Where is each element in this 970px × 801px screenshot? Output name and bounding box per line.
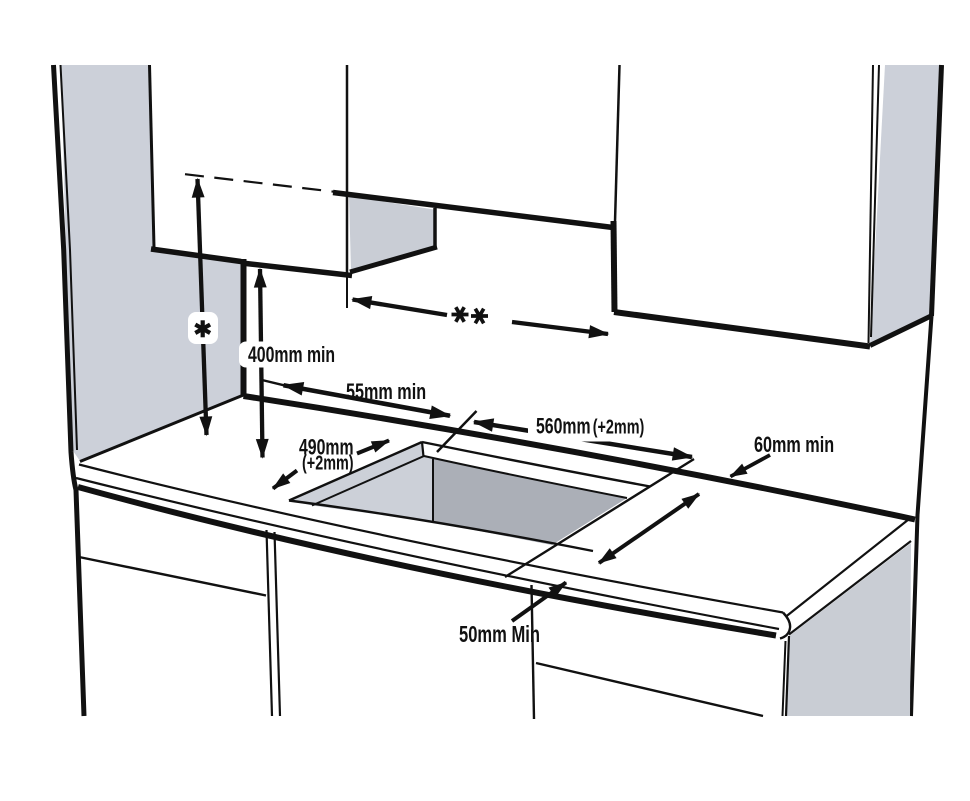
svg-text:50mm Min: 50mm Min xyxy=(459,622,540,647)
svg-text:400mm min: 400mm min xyxy=(248,344,335,368)
svg-text:(+2mm): (+2mm) xyxy=(302,451,354,474)
svg-text:55mm min: 55mm min xyxy=(346,379,426,404)
svg-text:560mm(+2mm): 560mm(+2mm) xyxy=(536,415,644,439)
svg-text:60mm min: 60mm min xyxy=(754,432,834,457)
